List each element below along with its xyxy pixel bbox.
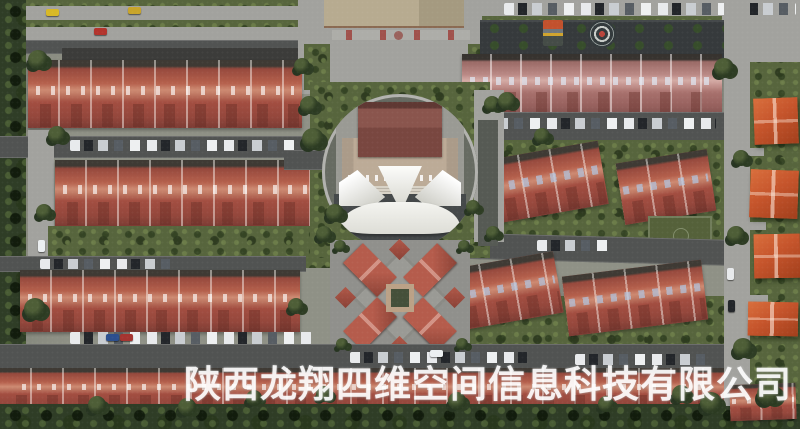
- gatehouse-building: [324, 0, 464, 28]
- road: [284, 150, 326, 170]
- tree-clump: [48, 126, 66, 144]
- villa-house: [754, 234, 800, 279]
- path: [746, 16, 800, 62]
- tree-clump: [714, 58, 734, 78]
- pavilion-courtyard: [386, 284, 414, 312]
- car: [38, 240, 45, 252]
- tree-clump: [336, 338, 348, 350]
- tree-clump: [466, 200, 480, 214]
- car: [46, 9, 59, 16]
- tree-clump: [24, 298, 46, 320]
- car: [128, 7, 141, 14]
- tree-clump: [733, 150, 749, 166]
- villa-house: [748, 302, 799, 337]
- parked-car-row: [40, 259, 172, 269]
- tree-clump: [300, 96, 318, 114]
- tree-clump: [294, 58, 310, 74]
- parked-car-row: [537, 240, 611, 251]
- central-plaza-circle: [322, 94, 478, 250]
- tree-clump: [727, 226, 745, 244]
- townhouse-row: [28, 60, 302, 128]
- hedge-row: [26, 20, 304, 27]
- tree-clump: [288, 298, 304, 314]
- car: [120, 334, 133, 341]
- tree-clump: [534, 128, 550, 144]
- parked-car-row: [504, 3, 796, 15]
- parked-car-row: [70, 140, 295, 151]
- tree-clump: [498, 92, 516, 110]
- tree-clump: [28, 50, 48, 70]
- car: [94, 28, 107, 35]
- tree-clump: [456, 338, 468, 350]
- watermark-text: 陕西龙翔四维空间信息科技有限公司: [184, 354, 792, 408]
- villa-house: [749, 169, 799, 219]
- car: [728, 300, 735, 312]
- car: [727, 268, 734, 280]
- tree-clump: [326, 204, 344, 222]
- aerial-photo: 陕西龙翔四维空间信息科技有限公司: [0, 0, 800, 429]
- roof-emblem-circle: [588, 20, 616, 48]
- tent-canopy-wide: [340, 202, 460, 234]
- plaza-medallion: [394, 31, 403, 40]
- playground-equipment: [543, 20, 563, 46]
- tree-clump: [302, 128, 324, 150]
- townhouse-row: [20, 270, 300, 332]
- pavilion-building: [340, 244, 460, 352]
- villa-house: [753, 97, 799, 145]
- tree-clump: [334, 240, 346, 252]
- parked-car-row: [470, 118, 716, 129]
- tree-clump: [36, 204, 52, 220]
- tree-clump: [458, 240, 470, 252]
- tree-clump: [486, 226, 500, 240]
- tree-clump: [316, 226, 332, 242]
- hedge-row: [26, 0, 304, 6]
- car: [106, 334, 119, 341]
- tree-clump: [88, 396, 106, 414]
